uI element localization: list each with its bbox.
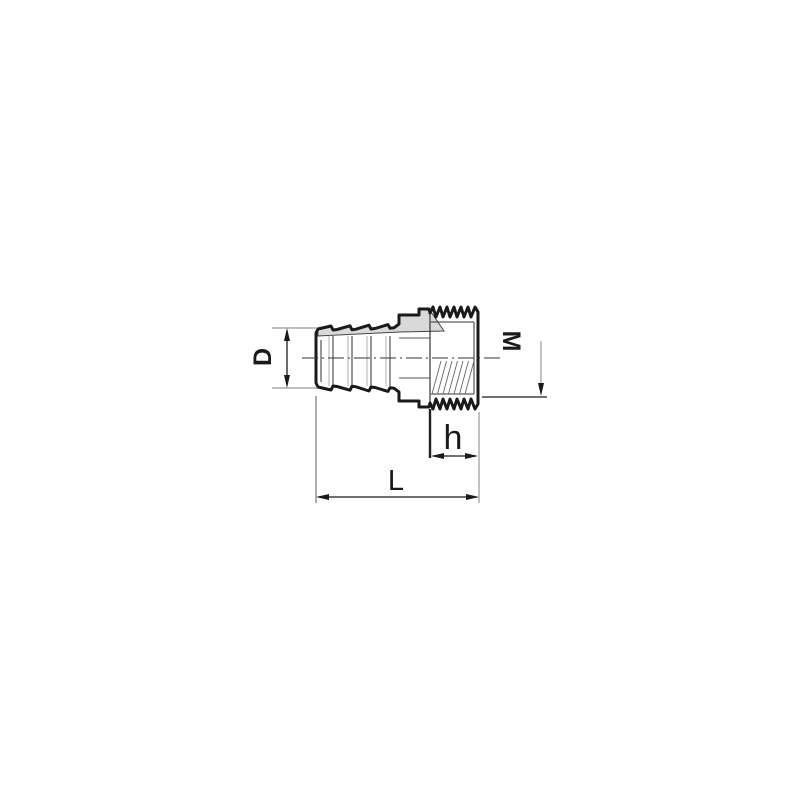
dim-h-arrow-left-icon xyxy=(431,453,444,459)
dim-h-arrow-right-icon xyxy=(465,453,478,459)
dim-M-arrow-down-icon xyxy=(538,383,544,396)
fitting-body xyxy=(302,307,500,409)
hose-barb-fitting-drawing: D M h L xyxy=(0,0,800,800)
dimension-L-label: L xyxy=(388,465,404,497)
dim-D-arrow-up-icon xyxy=(284,328,290,341)
dimension-h-label: h xyxy=(444,419,463,457)
dimension-D-label: D xyxy=(249,348,277,366)
dim-L-arrow-right-icon xyxy=(466,494,479,500)
dim-D-arrow-down-icon xyxy=(284,375,290,388)
dim-L-arrow-left-icon xyxy=(316,494,329,500)
dimension-h: h xyxy=(430,409,479,503)
dimension-M-label: M xyxy=(497,331,525,352)
dimension-M: M xyxy=(482,331,547,397)
technical-drawing-canvas: D M h L xyxy=(0,0,800,800)
